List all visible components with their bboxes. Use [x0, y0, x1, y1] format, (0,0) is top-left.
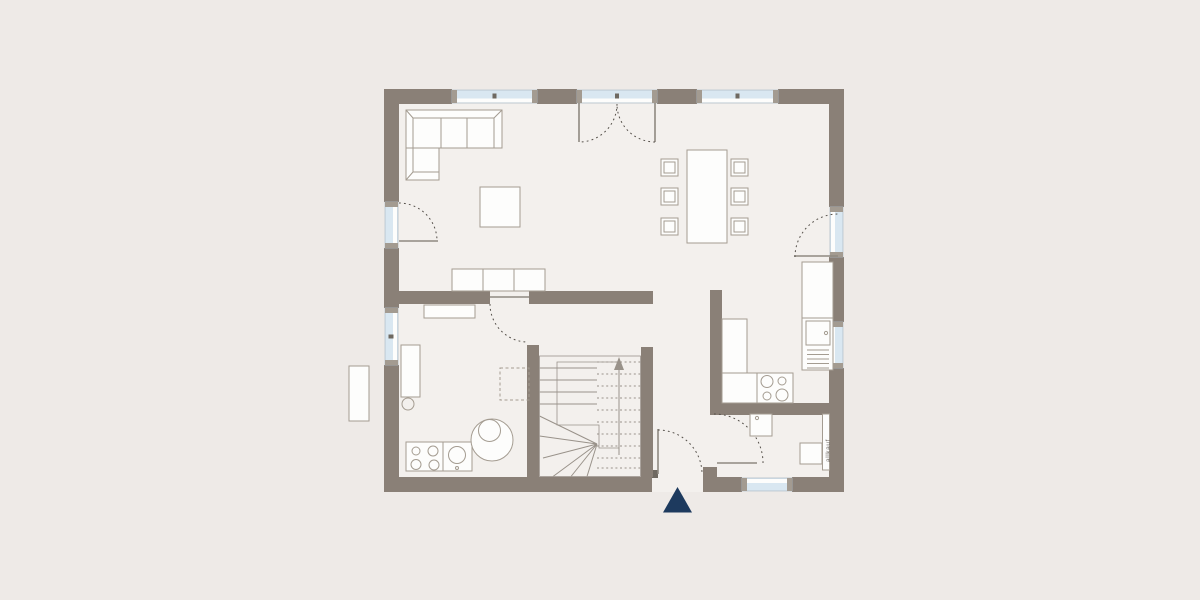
floor-plan-drawing: allkauf	[0, 0, 1200, 600]
window-top-left	[452, 90, 537, 103]
watermark-text: allkauf	[825, 439, 832, 462]
kitchen-stove	[757, 373, 793, 403]
wc-fixture	[800, 443, 822, 464]
window-top-right	[697, 90, 778, 103]
floor-plan-page: allkauf	[0, 0, 1200, 600]
kitchen-wall	[710, 290, 722, 405]
exterior-pad	[349, 366, 369, 421]
interior-wall-living	[399, 291, 490, 304]
water-boiler	[471, 419, 513, 461]
coffee-table	[480, 187, 520, 227]
hand-basin	[750, 414, 772, 436]
kitchen-counter-right	[802, 262, 833, 370]
window-bottom	[742, 478, 792, 491]
window-left	[385, 308, 398, 365]
dining-table	[687, 150, 727, 243]
utility-shelf	[424, 305, 475, 318]
utility-sink	[443, 442, 472, 471]
sideboard	[452, 269, 545, 291]
hall-wall	[710, 403, 829, 415]
stair-wall-left	[527, 345, 539, 477]
utility-cabinet	[401, 345, 420, 397]
utility-stove	[406, 442, 443, 471]
stair-wall-right	[641, 347, 653, 477]
